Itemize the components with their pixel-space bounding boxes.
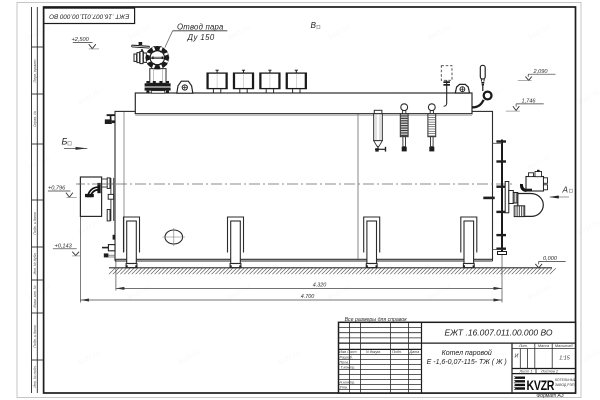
svg-text:Инв. № дубл.: Инв. № дубл.: [33, 252, 37, 274]
svg-text:Е -1,6-0,07-115- ТЖ ( Ж ): Е -1,6-0,07-115- ТЖ ( Ж ): [427, 359, 507, 366]
svg-text:Пров.: Пров.: [340, 361, 350, 365]
svg-text:А: А: [562, 185, 569, 194]
svg-text:Лист 1: Лист 1: [519, 369, 533, 373]
svg-text:N докум.: N докум.: [366, 350, 381, 354]
svg-text:2,090: 2,090: [533, 69, 549, 75]
svg-text:KVZR: KVZR: [527, 378, 555, 394]
svg-text:КОТЕЛЬНЫЙ: КОТЕЛЬНЫЙ: [555, 378, 577, 382]
svg-text:+0,143: +0,143: [55, 243, 73, 249]
svg-text:Т.контр.: Т.контр.: [341, 366, 356, 370]
svg-text:И: И: [515, 354, 519, 360]
svg-text:Масштаб: Масштаб: [555, 344, 574, 348]
svg-text:Б: Б: [62, 137, 68, 147]
svg-text:Изм Лист: Изм Лист: [339, 350, 356, 354]
svg-text:Формат А3: Формат А3: [536, 393, 564, 399]
svg-text:Подп. и дата: Подп. и дата: [33, 325, 37, 348]
svg-text:Дата: Дата: [409, 350, 420, 354]
svg-text:+2,500: +2,500: [72, 37, 90, 43]
svg-text:1,746: 1,746: [522, 99, 537, 105]
svg-text:Котел паровой: Котел паровой: [442, 349, 492, 357]
svg-text:0,000: 0,000: [543, 256, 558, 262]
svg-text:4.700: 4.700: [301, 294, 315, 300]
svg-text:Взам. инв. №: Взам. инв. №: [33, 285, 37, 307]
svg-text:ЗАВОД РЭП: ЗАВОД РЭП: [555, 383, 575, 387]
svg-text:Перв. примен.: Перв. примен.: [33, 59, 37, 83]
svg-text:Н.контр.: Н.контр.: [340, 381, 356, 385]
svg-text:В: В: [311, 21, 317, 30]
svg-text:+0,796: +0,796: [48, 185, 66, 191]
svg-text:ЕЖТ .16.007.011.00.000 ВО: ЕЖТ .16.007.011.00.000 ВО: [49, 13, 129, 20]
svg-text:Лит.: Лит.: [518, 344, 528, 348]
svg-text:Подп. и дата: Подп. и дата: [33, 212, 37, 235]
svg-text:4.320: 4.320: [313, 282, 327, 288]
svg-text:ЕЖТ .16.007.011.00.000 ВО: ЕЖТ .16.007.011.00.000 ВО: [444, 327, 552, 337]
svg-text:1:15: 1:15: [559, 356, 570, 362]
svg-text:Подп.: Подп.: [392, 350, 402, 354]
svg-text:Ду 150: Ду 150: [187, 33, 215, 42]
svg-text:Разраб.: Разраб.: [340, 356, 353, 360]
svg-text:Инв. № подл.: Инв. № подл.: [33, 365, 37, 387]
svg-text:Масса: Масса: [538, 344, 549, 348]
svg-text:Справ. №: Справ. №: [33, 111, 37, 127]
svg-text:Отвод пара: Отвод пара: [177, 22, 224, 31]
svg-text:Утв.: Утв.: [340, 386, 348, 390]
svg-text:Листов 2: Листов 2: [540, 369, 559, 373]
